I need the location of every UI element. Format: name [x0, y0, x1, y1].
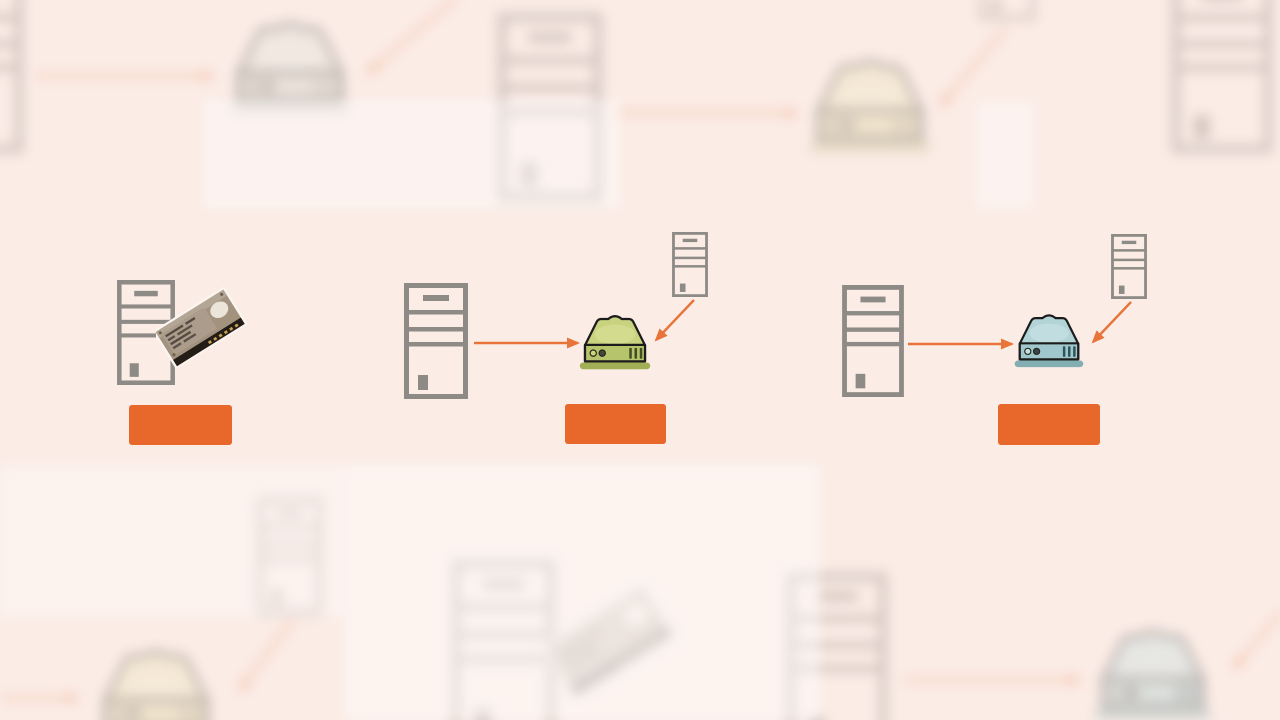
label-bar	[129, 405, 232, 445]
label-bar	[565, 404, 666, 444]
bg-arrow	[368, 0, 458, 73]
bg-small-tower-icon	[982, 0, 1033, 18]
arrow-client-to-nas	[1093, 302, 1131, 342]
small-desktop-tower-icon	[1112, 235, 1145, 297]
desktop-tower-icon	[407, 286, 466, 397]
bg-arrow	[240, 620, 293, 690]
diagram-group-2	[407, 233, 707, 444]
bg-arrow	[941, 28, 1006, 105]
diagram-group-1	[119, 282, 247, 445]
label-bar	[998, 404, 1100, 445]
bg-teal-nas-box-icon	[1095, 632, 1212, 720]
illustration-canvas	[0, 0, 1280, 720]
bg-yellow-nas-box-icon	[96, 652, 215, 720]
bg-arrow	[1234, 612, 1280, 668]
green-nas-box-icon	[580, 316, 651, 369]
bg-tower-icon	[1176, 0, 1268, 149]
teal-nas-box-icon	[1015, 315, 1084, 367]
hard-disk-drive-icon	[152, 286, 247, 369]
arrow-client-to-nas	[656, 300, 694, 340]
desktop-tower-icon	[845, 287, 902, 394]
bg-yellow-nas-box-icon	[810, 62, 931, 153]
diagram-group-3	[845, 235, 1146, 445]
bg-tower-icon	[0, 0, 19, 149]
small-desktop-tower-icon	[673, 233, 706, 295]
